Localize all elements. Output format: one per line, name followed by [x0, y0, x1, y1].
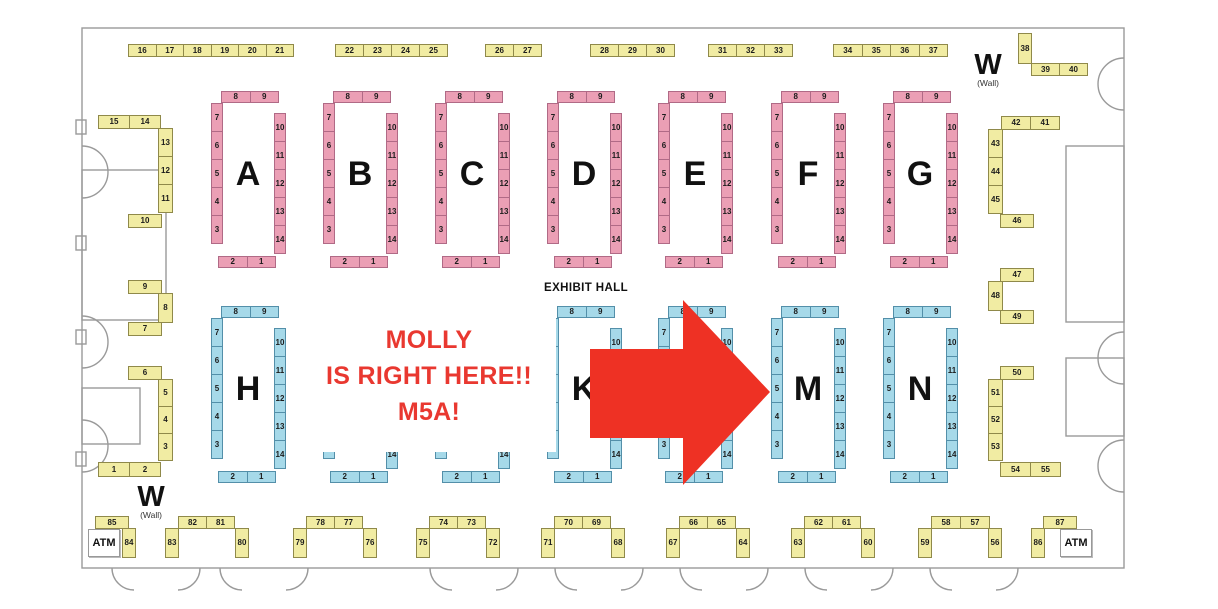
arrow-right-icon: [590, 300, 770, 485]
molly-location-arrow: [0, 0, 1218, 609]
exhibit-hall-floor-plan: EXHIBIT HALL W (Wall) W (Wall) ATM ATM 1…: [0, 0, 1218, 609]
